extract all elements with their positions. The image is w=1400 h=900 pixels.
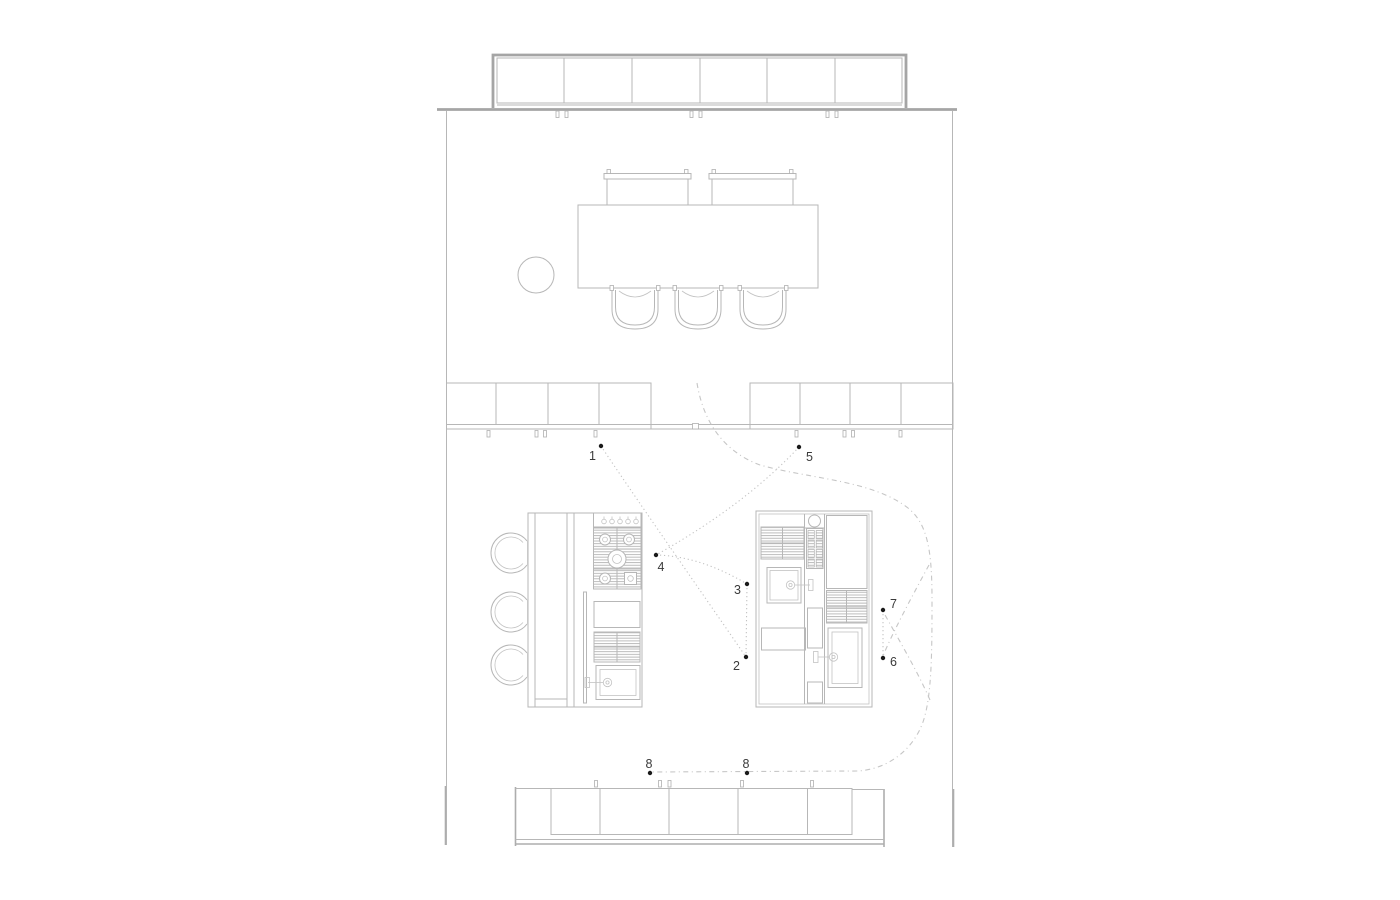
leader-door-route (650, 383, 932, 772)
block-vent-grille-right (827, 591, 868, 624)
faucet-icon (829, 653, 837, 661)
annotation-label-1: 1 (589, 449, 596, 463)
dining-table-group (518, 170, 818, 330)
door-opening-threshold (651, 424, 750, 430)
cabinet-hinge-marks (556, 111, 838, 118)
annotation-dot-3 (745, 582, 749, 586)
annotation-dot-8a (648, 771, 652, 775)
faucet-right-sink (814, 652, 838, 663)
annotation-dot-2 (744, 655, 748, 659)
floor-plan-page: 1 5 4 3 2 7 6 8 8 (0, 0, 1400, 900)
burner (600, 534, 611, 545)
burner (600, 573, 611, 584)
sideboard-left (447, 383, 652, 437)
round-hob (809, 515, 821, 527)
kitchen-island (528, 513, 642, 707)
annotation-dot-5 (797, 445, 801, 449)
annotation-label-3: 3 (734, 583, 741, 597)
bar-stool (491, 533, 528, 573)
bar-stool (491, 592, 528, 632)
block-vent-grille-left (761, 527, 804, 559)
block-drawer (762, 628, 806, 650)
annotation-dot-1 (599, 444, 603, 448)
annotation-label-6: 6 (890, 655, 897, 669)
dining-table (578, 205, 818, 288)
kitchen-block (756, 511, 872, 707)
leader-4-to-3 (656, 555, 747, 584)
faucet-icon (603, 678, 611, 686)
burner-large (608, 550, 626, 568)
annotation-label-8a: 8 (646, 757, 653, 771)
floor-plan-canvas: 1 5 4 3 2 7 6 8 8 (0, 0, 1400, 900)
island-vent-grille (594, 632, 640, 662)
block-sink-left (767, 568, 813, 604)
dining-chair (673, 286, 723, 330)
annotation-label-5: 5 (806, 450, 813, 464)
gas-hob (594, 528, 642, 589)
bar-stool (491, 645, 527, 685)
annotation-label-2: 2 (733, 659, 740, 673)
annotation-label-7: 7 (890, 597, 897, 611)
dining-chair (738, 286, 788, 330)
round-side-table (518, 257, 554, 293)
cabinet-hinge-marks (595, 781, 814, 788)
island-base-cabinet (594, 602, 640, 628)
annotation-label-4: 4 (658, 560, 665, 574)
sideboard-right (750, 383, 953, 437)
block-sink-right (828, 628, 862, 688)
tall-cabinet (827, 516, 868, 589)
burner (624, 534, 635, 545)
annotation-dot-6 (881, 656, 885, 660)
leader-3-to-2 (746, 584, 747, 657)
bench-left (604, 170, 691, 206)
dining-chair (610, 286, 660, 330)
room-walls (437, 110, 957, 848)
bottom-counter-bay (516, 781, 885, 848)
faucet-icon (786, 581, 794, 589)
annotation-dot-4 (654, 553, 658, 557)
annotation-dot-8b (745, 771, 749, 775)
gas-knob-row (594, 513, 642, 527)
annotation-dot-7 (881, 608, 885, 612)
bench-right (709, 170, 796, 206)
oven-stack (807, 529, 824, 569)
annotation-label-8b: 8 (743, 757, 750, 771)
island-sink (585, 666, 640, 700)
